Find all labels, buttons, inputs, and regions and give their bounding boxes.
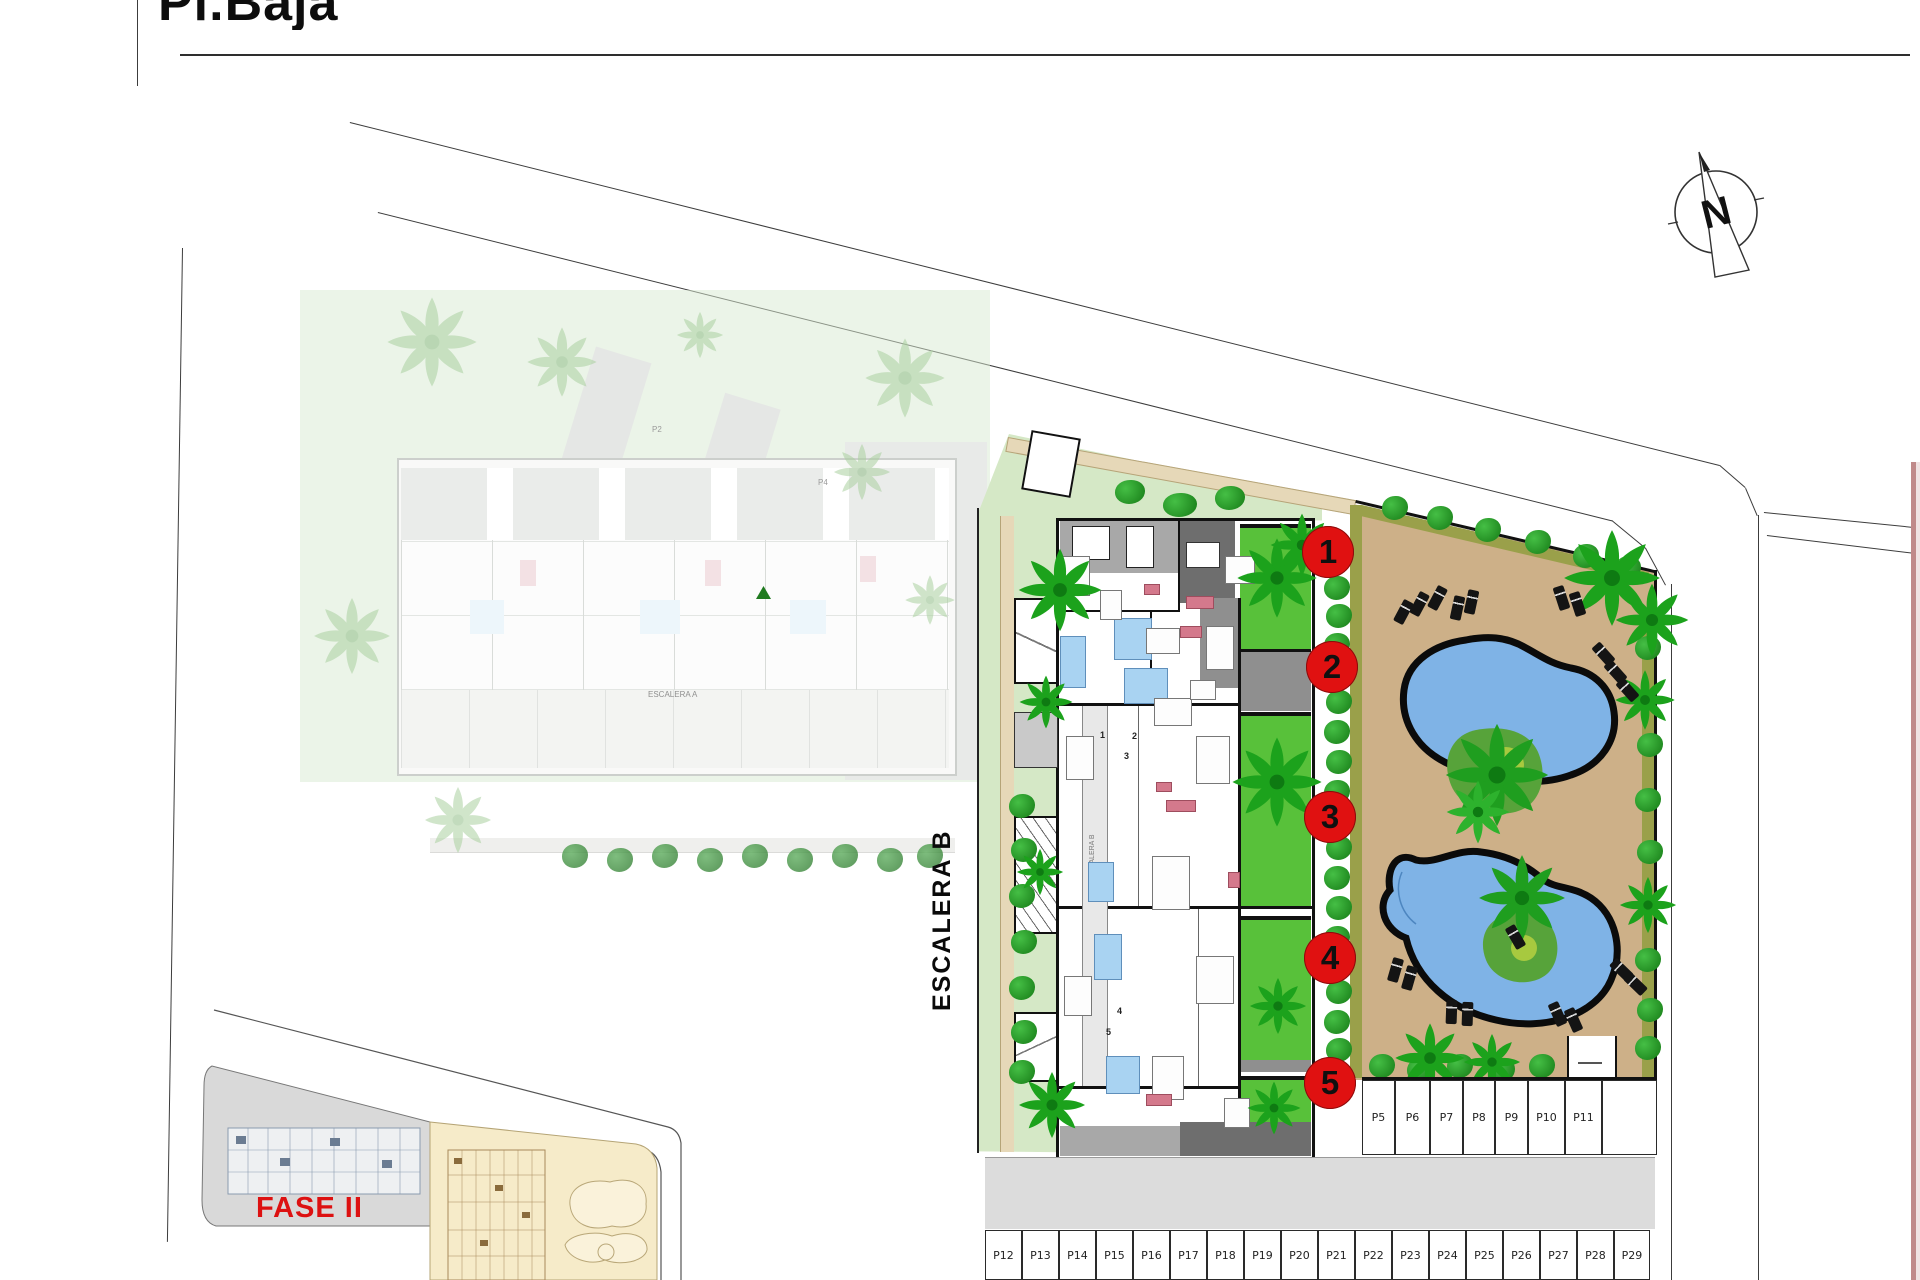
palm-tree-icon xyxy=(306,590,398,682)
parking-space-p18: P18 xyxy=(1207,1230,1244,1280)
garden-terrace xyxy=(1240,649,1311,711)
unit-marker-number: 3 xyxy=(1321,798,1339,836)
parking-space-label: P19 xyxy=(1252,1249,1273,1262)
entrance-notch xyxy=(1021,430,1081,498)
palm-tree-icon xyxy=(1012,1065,1092,1145)
key-building-fase2 xyxy=(228,1128,420,1194)
palm-tree-icon xyxy=(1470,846,1574,950)
title-underline xyxy=(180,54,1910,56)
faded-bath xyxy=(470,600,504,634)
unit-marker-number: 1 xyxy=(1319,533,1337,571)
bush-icon xyxy=(1326,896,1352,920)
parking-space-label: P5 xyxy=(1372,1111,1386,1124)
wall-thin xyxy=(1138,706,1139,906)
apartment-number: 4 xyxy=(1117,1006,1122,1016)
street-curb-right xyxy=(1758,515,1759,1280)
faded-bath xyxy=(790,600,826,634)
parking-space-p23: P23 xyxy=(1392,1230,1429,1280)
parking-space-label: P13 xyxy=(1030,1249,1051,1262)
bathroom-area xyxy=(1106,1056,1140,1094)
parking-space-p13: P13 xyxy=(1022,1230,1059,1280)
parking-space xyxy=(1602,1080,1657,1155)
parking-space-label: P22 xyxy=(1363,1249,1384,1262)
palm-tree-icon xyxy=(857,330,953,426)
bush-icon xyxy=(742,844,768,868)
parking-space-p14: P14 xyxy=(1059,1230,1096,1280)
sofa-item xyxy=(1156,782,1172,792)
parcel-west-boundary xyxy=(977,508,979,1153)
parking-space-p9: P9 xyxy=(1495,1080,1528,1155)
faded-bath xyxy=(640,600,680,634)
parking-space-label: P8 xyxy=(1472,1111,1486,1124)
page-edge-bar-light xyxy=(1916,462,1920,1280)
compass: N xyxy=(1660,130,1790,300)
unit-marker-5: 5 xyxy=(1304,1057,1356,1109)
north-arrow-icon: N xyxy=(1660,130,1790,300)
parking-space-label: P14 xyxy=(1067,1249,1088,1262)
apartment-number: 1 xyxy=(1100,730,1105,740)
road-line xyxy=(1745,488,1758,516)
faded-path xyxy=(430,838,955,853)
parking-space-p29: P29 xyxy=(1614,1230,1650,1280)
pool-entrance-gap xyxy=(1567,1036,1617,1080)
furniture-item xyxy=(1206,626,1234,670)
bush-icon xyxy=(1326,690,1352,714)
furniture-item xyxy=(1066,736,1094,780)
road-line xyxy=(1719,465,1746,488)
parking-space-p24: P24 xyxy=(1429,1230,1466,1280)
faded-rooms xyxy=(401,540,949,690)
apartment-number: 3 xyxy=(1124,751,1129,761)
garden-terrace xyxy=(1240,1060,1311,1072)
apartment-number: 2 xyxy=(1132,731,1137,741)
parking-space-p27: P27 xyxy=(1540,1230,1577,1280)
furniture-item xyxy=(1154,698,1192,726)
bathroom-area xyxy=(1088,862,1114,902)
apartment-number: 5 xyxy=(1106,1027,1111,1037)
furniture-item xyxy=(1190,680,1216,700)
sofa-item xyxy=(1146,1094,1172,1106)
palm-tree-icon xyxy=(672,307,728,363)
unit-marker-number: 4 xyxy=(1321,939,1339,977)
bush-icon xyxy=(1324,1010,1350,1034)
parking-space-label: P18 xyxy=(1215,1249,1236,1262)
wall xyxy=(1178,521,1180,611)
sofa-item xyxy=(1228,872,1240,888)
terrace-box xyxy=(1186,542,1220,568)
palm-tree-icon xyxy=(1614,871,1682,939)
parking-space-p5: P5 xyxy=(1362,1080,1395,1155)
parking-space-p28: P28 xyxy=(1577,1230,1614,1280)
parking-space-p20: P20 xyxy=(1281,1230,1318,1280)
parking-space-p6: P6 xyxy=(1395,1080,1430,1155)
parking-space-label: P9 xyxy=(1505,1111,1519,1124)
sun-lounger-icon xyxy=(1462,1002,1474,1026)
parking-space-label: P29 xyxy=(1622,1249,1643,1262)
parking-space-p22: P22 xyxy=(1355,1230,1392,1280)
parking-space-label: P21 xyxy=(1326,1249,1347,1262)
palm-tree-icon xyxy=(828,438,896,506)
parking-space-p12: P12 xyxy=(985,1230,1022,1280)
parking-space-label: P7 xyxy=(1440,1111,1454,1124)
parking-space-label: P27 xyxy=(1548,1249,1569,1262)
parking-space-p16: P16 xyxy=(1133,1230,1170,1280)
parking-space-label: P16 xyxy=(1141,1249,1162,1262)
sofa-item xyxy=(1144,584,1160,595)
unit-marker-number: 2 xyxy=(1323,648,1341,686)
parking-space-p8: P8 xyxy=(1463,1080,1495,1155)
bush-icon xyxy=(652,844,678,868)
parking-space-p26: P26 xyxy=(1503,1230,1540,1280)
site-plan: Pl.Baja N xyxy=(0,0,1920,1280)
palm-tree-icon xyxy=(520,320,604,404)
parking-space-label: P15 xyxy=(1104,1249,1125,1262)
palm-tree-icon xyxy=(1608,576,1696,664)
unit-marker-1: 1 xyxy=(1302,526,1354,578)
bush-icon xyxy=(562,844,588,868)
unit-marker-4: 4 xyxy=(1304,932,1356,984)
parking-space-label: P24 xyxy=(1437,1249,1458,1262)
page-title: Pl.Baja xyxy=(158,0,418,30)
roof-box xyxy=(1126,526,1154,568)
faded-sofa xyxy=(520,560,536,586)
unit-marker-number: 5 xyxy=(1321,1064,1339,1102)
boundary-marker-icon xyxy=(756,586,771,599)
furniture-item xyxy=(1196,956,1234,1004)
bathroom-area xyxy=(1094,934,1122,980)
bush-icon xyxy=(607,848,633,872)
parking-space-p11: P11 xyxy=(1565,1080,1602,1155)
parking-space-p10: P10 xyxy=(1528,1080,1565,1155)
faded-parking-label: P4 xyxy=(818,478,828,487)
furniture-item xyxy=(1152,856,1190,910)
parking-space-label: P17 xyxy=(1178,1249,1199,1262)
parking-space-label: P25 xyxy=(1474,1249,1495,1262)
bush-icon xyxy=(1324,866,1350,890)
faded-driveway xyxy=(681,393,780,553)
faded-parking-label: P2 xyxy=(652,425,662,434)
road-line xyxy=(350,122,1720,466)
road-line xyxy=(1764,512,1920,529)
bush-icon xyxy=(697,848,723,872)
palm-tree-icon xyxy=(1012,844,1068,900)
faded-sofa xyxy=(705,560,721,586)
parking-space-p7: P7 xyxy=(1430,1080,1463,1155)
road-line xyxy=(1767,535,1920,555)
wall xyxy=(1238,598,1241,1124)
faded-sofa xyxy=(860,556,876,582)
sofa-item xyxy=(1180,626,1202,638)
sofa-item xyxy=(1186,596,1214,609)
entrance-step xyxy=(1578,1062,1602,1064)
furniture-item xyxy=(1146,628,1180,654)
parking-space-label: P20 xyxy=(1289,1249,1310,1262)
furniture-item xyxy=(1064,976,1092,1016)
parking-space-label: P11 xyxy=(1573,1111,1594,1124)
escalera-a-inner-label: ESCALERA A xyxy=(648,690,697,750)
bush-icon xyxy=(787,848,813,872)
palm-tree-icon xyxy=(418,780,498,860)
bush-icon xyxy=(1326,604,1352,628)
bush-icon xyxy=(877,848,903,872)
bush-icon xyxy=(832,844,858,868)
sun-lounger-icon xyxy=(1446,1000,1458,1024)
parking-space-p25: P25 xyxy=(1466,1230,1503,1280)
parking-space-p15: P15 xyxy=(1096,1230,1133,1280)
parking-space-p17: P17 xyxy=(1170,1230,1207,1280)
palm-tree-icon xyxy=(1014,670,1078,734)
sofa-item xyxy=(1166,800,1196,812)
parking-space-p19: P19 xyxy=(1244,1230,1281,1280)
palm-tree-icon xyxy=(1440,774,1516,850)
road-strip xyxy=(985,1157,1655,1229)
svg-text:N: N xyxy=(1697,188,1736,238)
palm-tree-icon xyxy=(378,288,486,396)
unit-marker-3: 3 xyxy=(1304,791,1356,843)
parking-space-label: P10 xyxy=(1536,1111,1557,1124)
escalera-b-label: ESCALERA B xyxy=(928,828,962,1013)
parking-space-label: P28 xyxy=(1585,1249,1606,1262)
palm-tree-icon xyxy=(1010,540,1110,640)
parking-space-label: P26 xyxy=(1511,1249,1532,1262)
fase2-label: FASE II xyxy=(256,1192,363,1225)
parking-space-label: P12 xyxy=(993,1249,1014,1262)
palm-tree-icon xyxy=(900,570,960,630)
palm-tree-icon xyxy=(1242,1076,1306,1140)
key-plan xyxy=(150,990,710,1280)
border-line-left-top xyxy=(137,0,138,86)
palm-tree-icon xyxy=(1244,972,1312,1040)
parking-space-p21: P21 xyxy=(1318,1230,1355,1280)
parking-space-label: P6 xyxy=(1406,1111,1420,1124)
unit-marker-2: 2 xyxy=(1306,641,1358,693)
parking-space-label: P23 xyxy=(1400,1249,1421,1262)
